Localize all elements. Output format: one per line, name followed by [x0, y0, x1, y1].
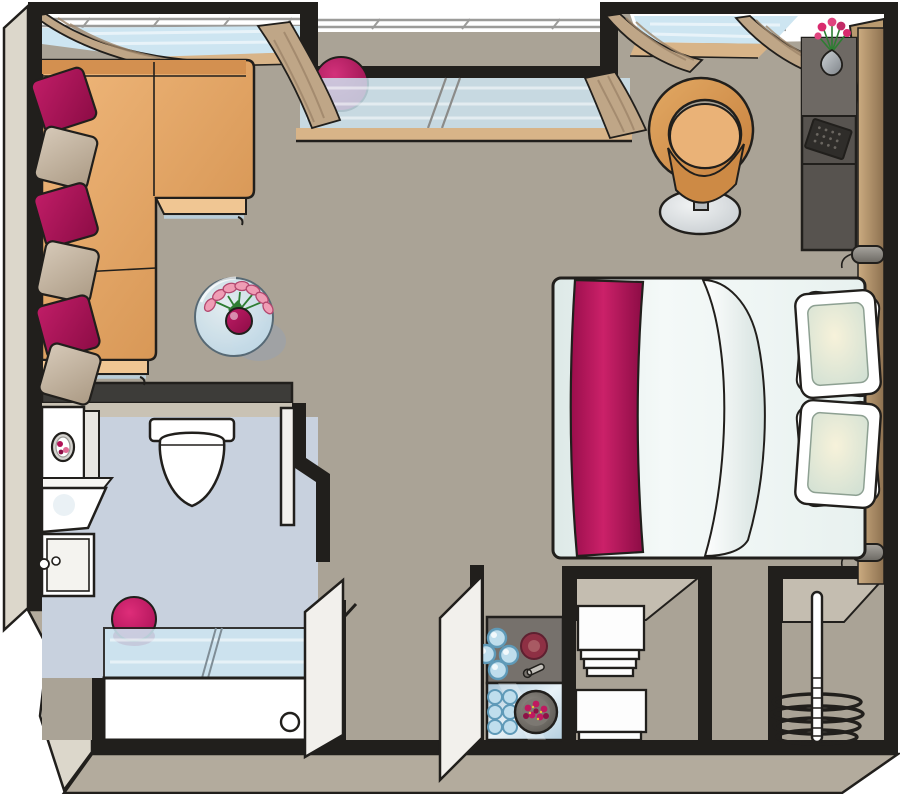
bathtub — [104, 678, 334, 740]
clothes-rail — [812, 592, 822, 742]
bottom-wall — [92, 740, 898, 754]
berry-plate — [515, 691, 557, 733]
towel-stack — [578, 606, 644, 676]
window-sill — [296, 128, 632, 141]
hotplate — [521, 633, 547, 659]
bed-pillow — [794, 399, 881, 508]
window-center-recess — [296, 2, 632, 141]
floor-plan — [0, 0, 900, 794]
bathroom-door-leaf — [281, 408, 294, 525]
washing-machine — [42, 407, 99, 481]
bottom-wall-bevel — [64, 754, 898, 793]
bed-runner — [571, 280, 643, 556]
tub-chair — [649, 78, 753, 234]
floor-plan-canvas — [0, 0, 900, 794]
drain — [281, 713, 299, 731]
console-desk — [802, 18, 856, 250]
bathroom-door — [305, 580, 343, 757]
bathroom-cabinet — [39, 534, 94, 596]
towel-stack — [576, 690, 646, 740]
double-bed — [553, 278, 882, 558]
egg-tray — [488, 690, 517, 734]
bed-pillow — [794, 289, 881, 398]
